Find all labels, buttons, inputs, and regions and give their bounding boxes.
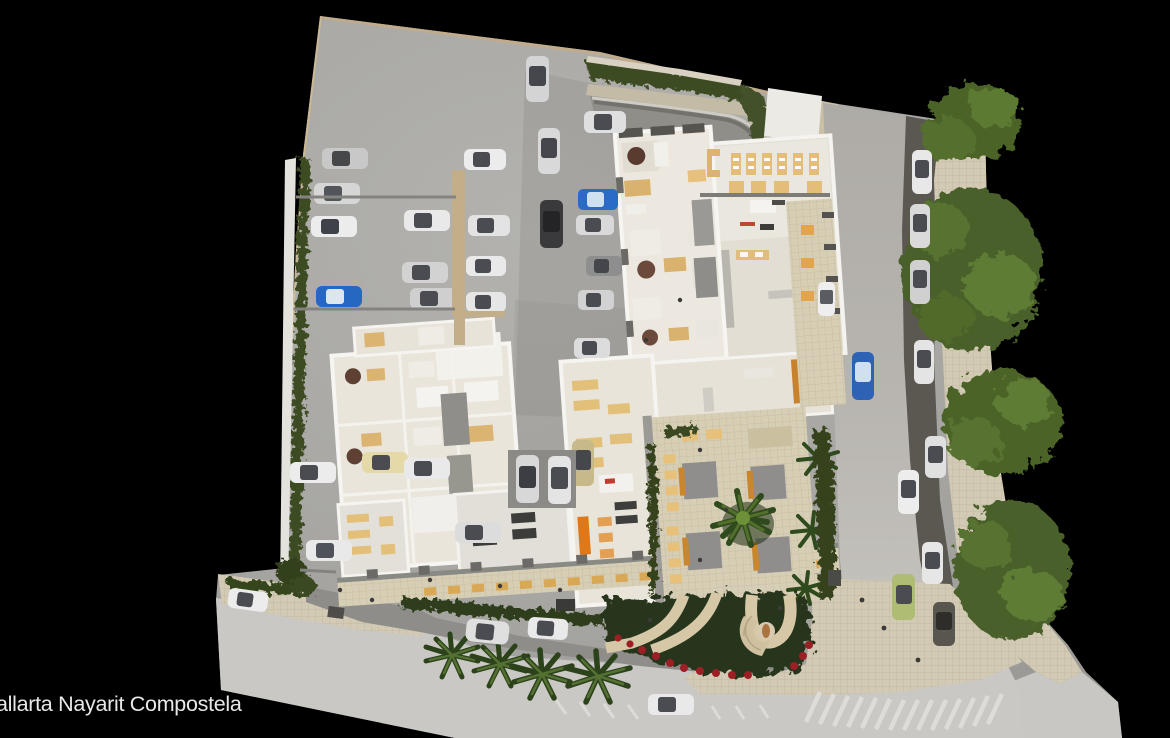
svg-text:allarta Nayarit Compostela: allarta Nayarit Compostela bbox=[0, 692, 242, 716]
